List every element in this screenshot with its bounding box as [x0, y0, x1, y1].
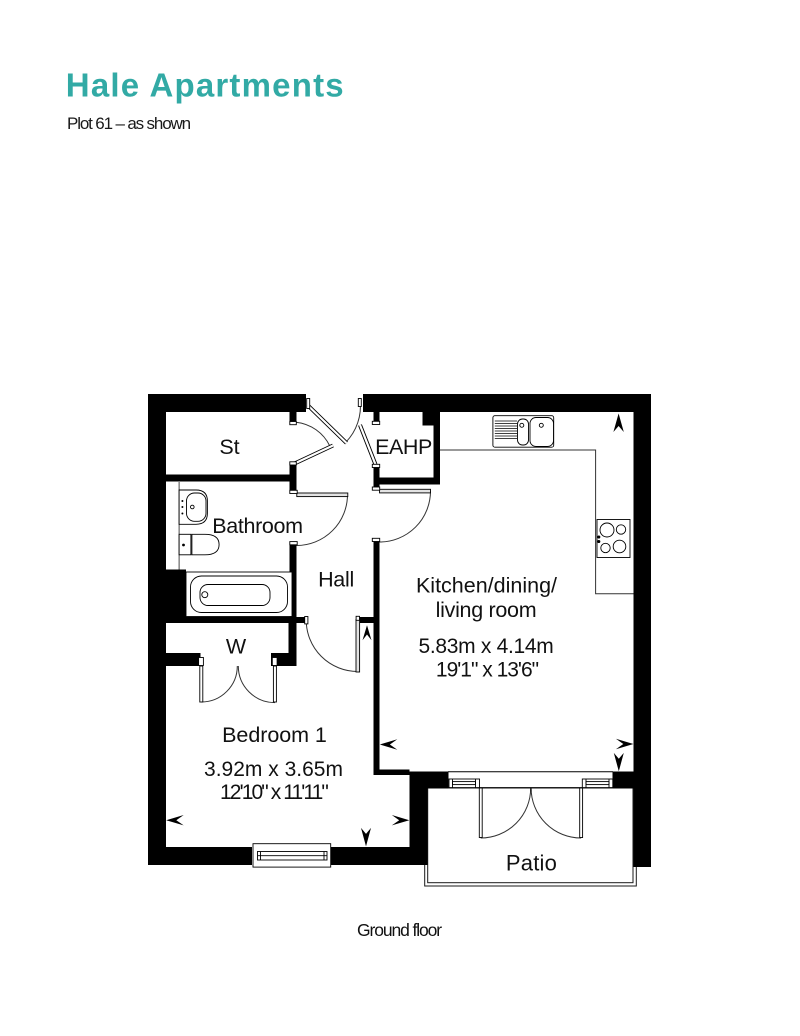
svg-text:EAHP: EAHP — [375, 435, 432, 459]
svg-text:St: St — [219, 435, 239, 459]
svg-text:Bedroom 1: Bedroom 1 — [222, 723, 327, 747]
svg-text:3.92m x 3.65m: 3.92m x 3.65m — [204, 758, 343, 781]
svg-text:19'1" x 13'6": 19'1" x 13'6" — [436, 658, 539, 681]
svg-text:living room: living room — [436, 598, 537, 622]
svg-text:Ground floor: Ground floor — [357, 920, 442, 940]
svg-text:Kitchen/dining/: Kitchen/dining/ — [416, 574, 557, 598]
svg-text:Hall: Hall — [318, 568, 354, 592]
svg-text:5.83m x 4.14m: 5.83m x 4.14m — [419, 635, 554, 658]
svg-text:Plot 61 – as shown: Plot 61 – as shown — [67, 114, 191, 133]
svg-text:Bathroom: Bathroom — [212, 514, 302, 538]
svg-text:Hale Apartments: Hale Apartments — [66, 67, 345, 104]
svg-text:12'10" x 11'11": 12'10" x 11'11" — [220, 781, 328, 804]
svg-text:W: W — [226, 635, 247, 659]
svg-text:Patio: Patio — [506, 850, 557, 875]
